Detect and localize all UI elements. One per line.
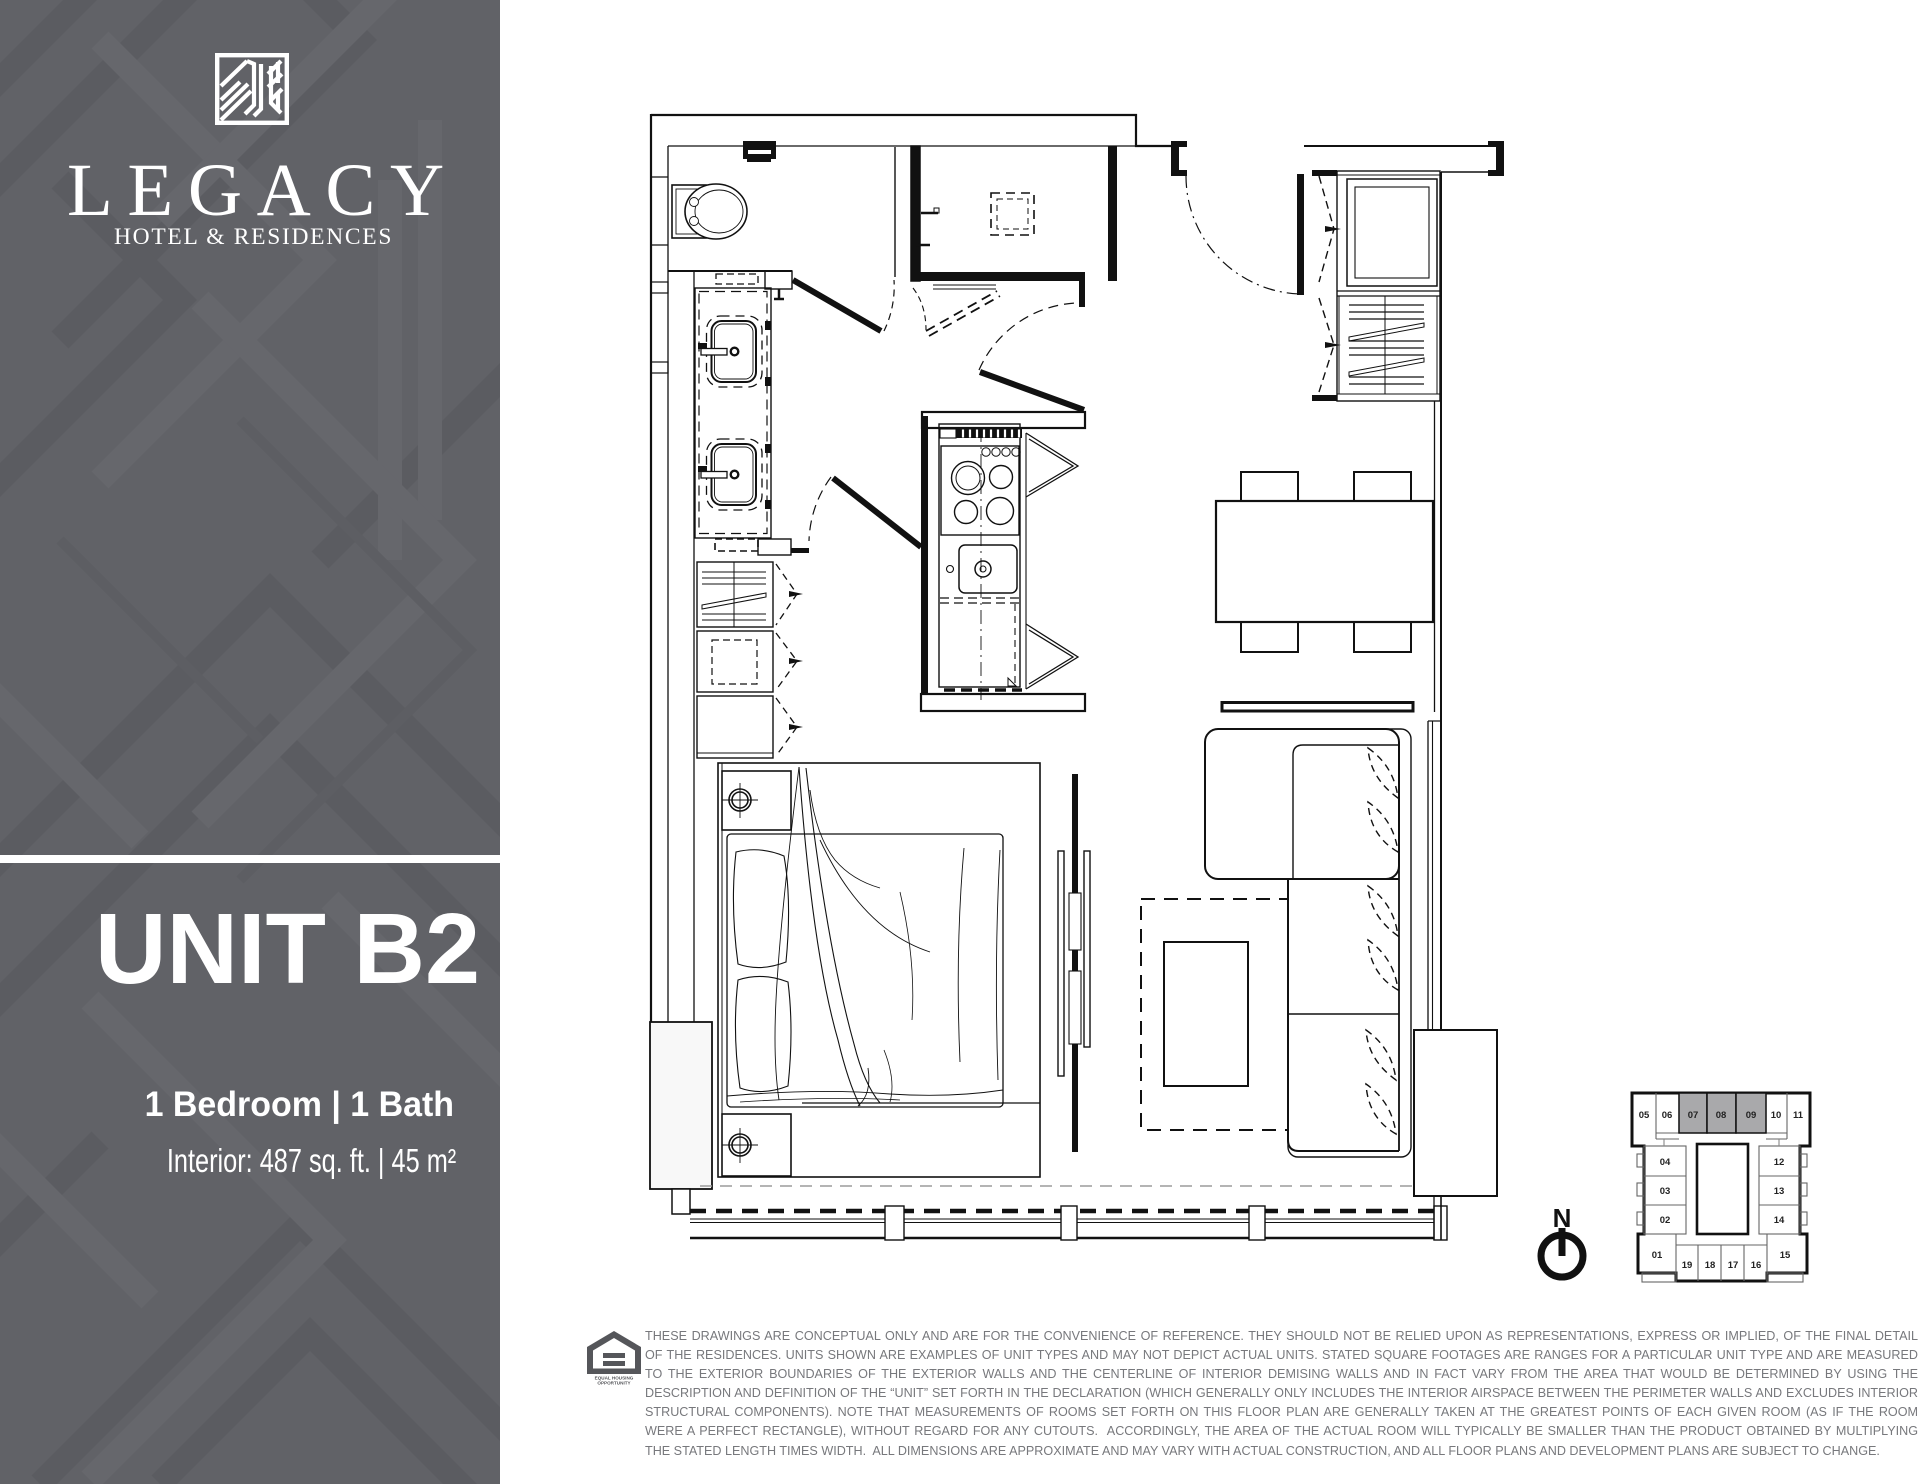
svg-text:02: 02 — [1660, 1215, 1671, 1226]
svg-text:07: 07 — [1688, 1110, 1699, 1121]
svg-text:10: 10 — [1771, 1110, 1782, 1121]
svg-text:15: 15 — [1780, 1250, 1791, 1261]
svg-text:13: 13 — [1774, 1186, 1785, 1197]
svg-text:N: N — [1553, 1203, 1572, 1233]
svg-text:19: 19 — [1682, 1260, 1693, 1271]
svg-text:08: 08 — [1716, 1110, 1727, 1121]
svg-text:12: 12 — [1774, 1157, 1785, 1168]
svg-text:06: 06 — [1662, 1110, 1673, 1121]
svg-text:09: 09 — [1746, 1110, 1757, 1121]
svg-text:17: 17 — [1728, 1260, 1739, 1271]
svg-text:16: 16 — [1751, 1260, 1762, 1271]
svg-text:18: 18 — [1705, 1260, 1716, 1271]
svg-text:11: 11 — [1793, 1110, 1804, 1121]
svg-text:05: 05 — [1639, 1110, 1650, 1121]
svg-text:01: 01 — [1652, 1250, 1663, 1261]
svg-text:14: 14 — [1774, 1215, 1785, 1226]
svg-text:03: 03 — [1660, 1186, 1671, 1197]
svg-text:04: 04 — [1660, 1157, 1671, 1168]
